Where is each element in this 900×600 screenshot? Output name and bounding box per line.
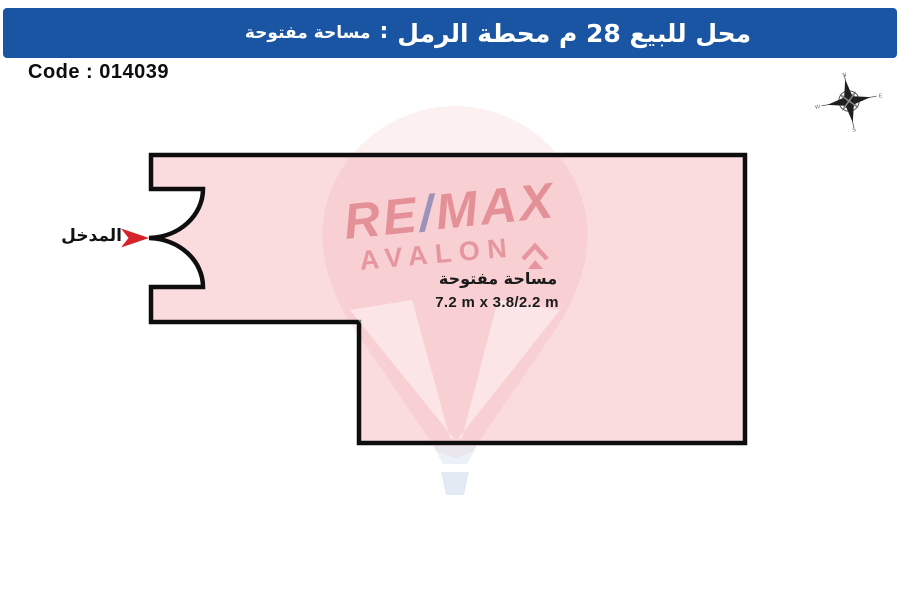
page-canvas: محل للبيع 28 م محطة الرمل : مساحة مفتوحة… [0,0,900,600]
compass-label-south: S [852,127,857,134]
balloon-tip [433,446,477,464]
compass-rose-icon: N S E W [810,67,888,140]
compass-label-north: N [842,72,847,79]
balloon-basket [441,472,469,495]
entrance-arrow-icon [121,229,149,248]
dimensions-label: 7.2 m x 3.8/2.2 m [435,294,559,311]
entrance-label: المدخل [46,226,122,246]
compass-label-west: W [815,104,822,111]
compass-label-east: E [878,93,883,100]
area-label: مساحة مفتوحة [439,269,557,288]
